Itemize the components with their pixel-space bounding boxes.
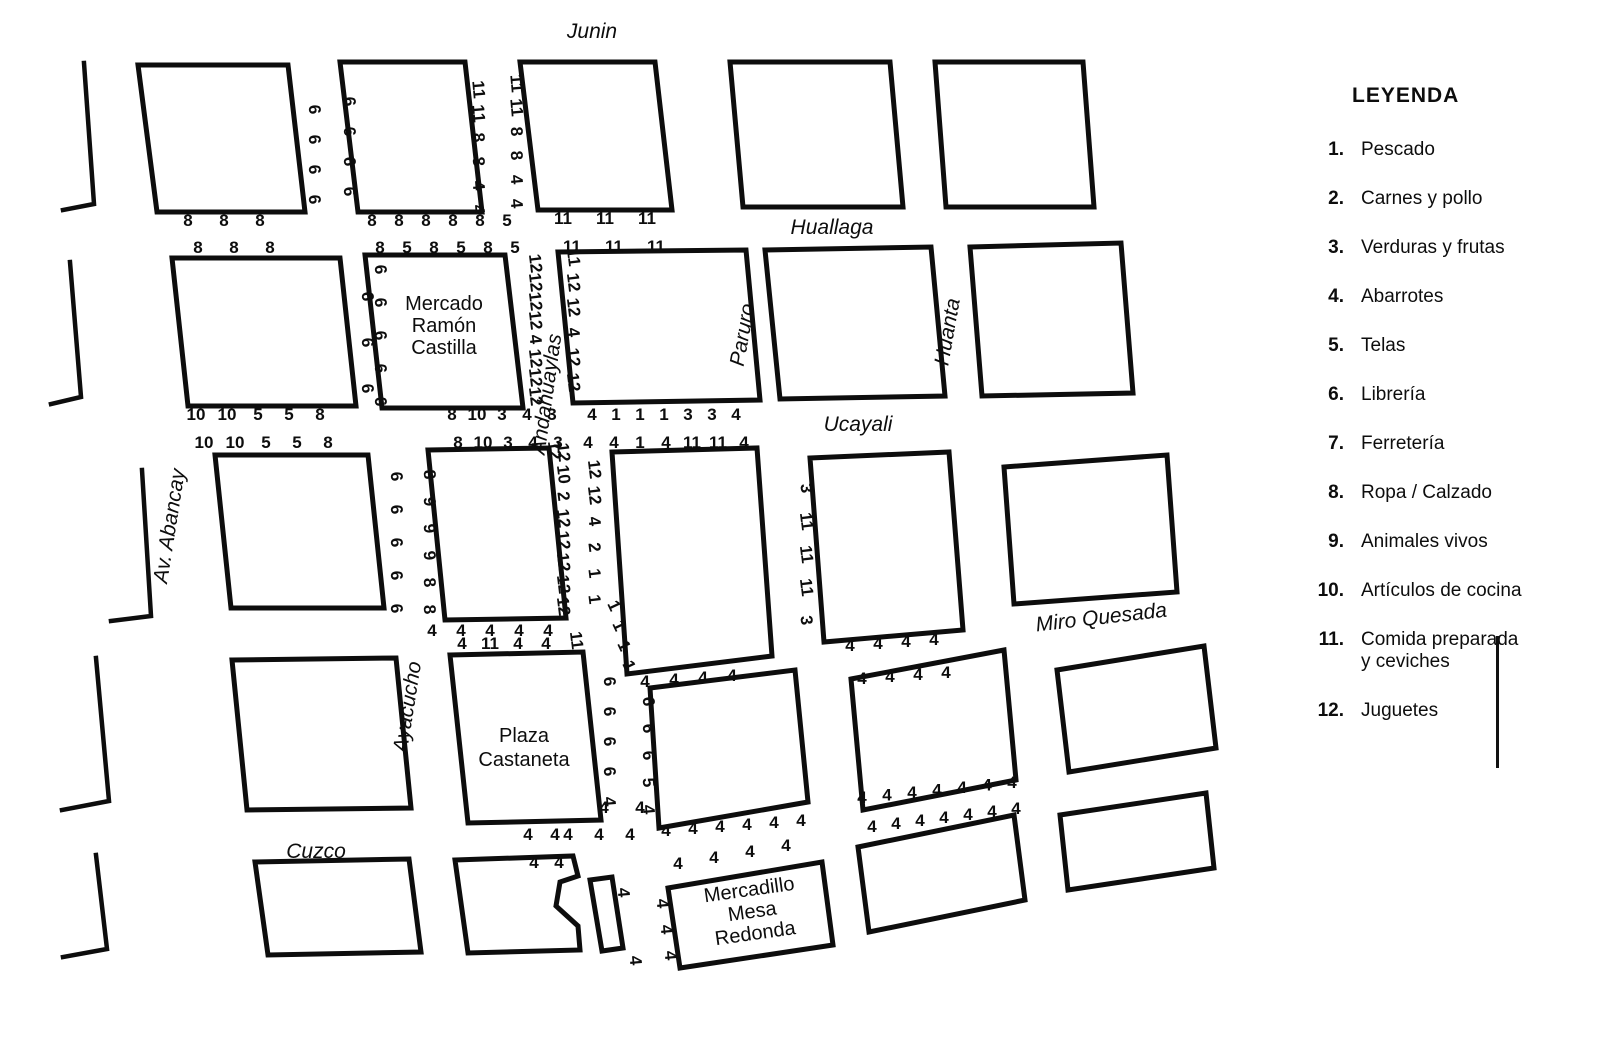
legend-item-number: 8. bbox=[1308, 482, 1344, 504]
stall-number: 8 bbox=[420, 604, 440, 615]
stall-number: 1 bbox=[611, 405, 620, 424]
stall-number: 6 bbox=[600, 736, 620, 747]
stall-number: 11 bbox=[554, 209, 572, 228]
stall-number: 6 bbox=[305, 134, 325, 145]
stall-number: 4 bbox=[587, 405, 597, 424]
legend-item-label: Pescado bbox=[1361, 139, 1435, 161]
stall-number: 8 bbox=[453, 433, 462, 452]
stall-number: 4 bbox=[957, 778, 967, 797]
stall-number: 8 bbox=[375, 238, 384, 257]
street-cuzco: Cuzco bbox=[286, 840, 346, 863]
stall-number: 10 bbox=[226, 433, 245, 452]
stall-number: 4 bbox=[796, 811, 806, 830]
street-miro-quesada: Miro Quesada bbox=[1034, 599, 1168, 637]
stall-number: 4 bbox=[739, 433, 749, 452]
legend-item-label: Animales vivos bbox=[1361, 531, 1488, 553]
stall-number: 12 bbox=[584, 459, 605, 480]
stall-number: 4 bbox=[987, 802, 997, 821]
street-av-abancay: Av. Abancay bbox=[149, 466, 190, 587]
legend-item: 5. Telas bbox=[1308, 335, 1601, 357]
stall-number: 12 bbox=[563, 297, 584, 318]
legend-item-label: Ferretería bbox=[1361, 433, 1444, 455]
street-huallaga: Huallaga bbox=[791, 216, 874, 239]
street-junin: Junin bbox=[566, 20, 617, 43]
block-r4c5 bbox=[1057, 646, 1216, 772]
stall-number: 4 bbox=[698, 668, 708, 687]
block-r5c5 bbox=[1060, 793, 1214, 890]
legend-item-number: 5. bbox=[1308, 335, 1344, 357]
stall-number: 6 bbox=[600, 706, 620, 717]
stall-number: 11 bbox=[605, 237, 623, 256]
stall-number: 1 bbox=[659, 405, 668, 424]
stall-number: 4 bbox=[507, 198, 527, 210]
stall-number: 4 bbox=[745, 842, 755, 861]
stall-number: 4 bbox=[669, 670, 679, 689]
stall-number: 4 bbox=[901, 632, 911, 651]
stall-number: 4 bbox=[882, 786, 892, 805]
stall-number: 8 bbox=[507, 150, 527, 161]
stall-number: 11 bbox=[566, 630, 587, 650]
block-r3c4 bbox=[810, 452, 963, 642]
legend-item-label: Verduras y frutas bbox=[1361, 237, 1505, 259]
stall-number: 5 bbox=[510, 238, 519, 257]
stall-number: 11 bbox=[796, 511, 817, 531]
stall-number: 6 bbox=[639, 696, 659, 707]
stall-number: 4 bbox=[709, 848, 719, 867]
street-ayacucho: Ayacucho bbox=[389, 659, 426, 756]
stall-number: 11 bbox=[563, 247, 584, 267]
stall-number: 10 bbox=[195, 433, 214, 452]
stall-number: 5 bbox=[639, 777, 659, 788]
stall-number: 4 bbox=[584, 515, 604, 527]
block-r1c4 bbox=[730, 62, 903, 207]
stall-number: 4 bbox=[640, 672, 650, 691]
stall-number: 6 bbox=[371, 363, 391, 374]
stall-number: 12 bbox=[525, 291, 546, 312]
stall-number: 4 bbox=[541, 634, 551, 653]
stall-number: 4 bbox=[932, 781, 942, 800]
stall-number: 5 bbox=[261, 433, 270, 452]
stall-number: 4 bbox=[963, 805, 973, 824]
stall-number: 9 bbox=[420, 523, 440, 534]
stall-number: 4 bbox=[639, 804, 659, 816]
stall-number: 6 bbox=[305, 194, 325, 205]
block-r3c1 bbox=[215, 455, 384, 608]
stall-number: 4 bbox=[513, 634, 523, 653]
block-r4c1 bbox=[232, 658, 411, 810]
stall-number: 4 bbox=[781, 836, 791, 855]
stall-number: 8 bbox=[323, 433, 332, 452]
stall-number: 11 bbox=[796, 544, 817, 564]
stall-number: 4 bbox=[915, 811, 925, 830]
stall-number: 8 bbox=[229, 238, 238, 257]
stall-number: 12 bbox=[525, 310, 546, 331]
stall-number: 6 bbox=[387, 504, 407, 515]
stall-number: 4 bbox=[688, 819, 698, 838]
stall-number: 12 bbox=[553, 552, 574, 573]
stall-number: 12 bbox=[525, 253, 546, 274]
stall-number: 4 bbox=[941, 663, 951, 682]
stall-number: 2 bbox=[553, 490, 573, 502]
stall-number: 6 bbox=[387, 570, 407, 581]
legend-item-label: Telas bbox=[1361, 335, 1405, 357]
legend-item-number: 9. bbox=[1308, 531, 1344, 553]
stall-number: 8 bbox=[420, 469, 440, 480]
block-r1c1 bbox=[138, 65, 305, 212]
stall-number: 6 bbox=[340, 126, 360, 137]
stall-number: 5 bbox=[502, 211, 511, 230]
stall-number: 2 bbox=[584, 541, 604, 553]
block-r5c4 bbox=[858, 815, 1025, 932]
stall-number: 6 bbox=[600, 676, 620, 687]
stall-number: 6 bbox=[371, 396, 391, 407]
stall-number: 4 bbox=[715, 817, 725, 836]
stall-number: 4 bbox=[769, 813, 779, 832]
stall-number: 4 bbox=[857, 669, 867, 688]
legend-item-number: 6. bbox=[1308, 384, 1344, 406]
edge-r2-left bbox=[51, 262, 81, 404]
stall-number: 6 bbox=[305, 104, 325, 115]
stall-number: 8 bbox=[447, 405, 456, 424]
stall-number: 4 bbox=[529, 853, 539, 872]
stall-number: 8 bbox=[394, 211, 403, 230]
stall-number: 12 bbox=[553, 596, 574, 617]
stall-number: 12 bbox=[584, 485, 605, 506]
stall-number: 8 bbox=[265, 238, 274, 257]
stall-number: 8 bbox=[429, 238, 438, 257]
stall-number: 8 bbox=[421, 211, 430, 230]
block-r2c5 bbox=[970, 243, 1133, 396]
stall-number: 4 bbox=[673, 854, 683, 873]
edge-r5-left bbox=[63, 855, 107, 957]
block-r1c2 bbox=[340, 62, 482, 212]
label-mercadillo-mesa-redonda: MercadilloMesaRedonda bbox=[702, 873, 801, 951]
legend-item: 10. Artículos de cocina bbox=[1308, 580, 1601, 602]
stall-number: 4 bbox=[727, 666, 737, 685]
stall-number: 4 bbox=[939, 808, 949, 827]
label-plaza-castaneta: PlazaCastaneta bbox=[478, 725, 570, 771]
legend-item-label: Juguetes bbox=[1361, 700, 1438, 722]
stall-number: 6 bbox=[387, 603, 407, 614]
stall-number: 1 bbox=[584, 567, 604, 579]
stall-number: 11 bbox=[647, 237, 665, 256]
stall-number: 1 bbox=[635, 405, 644, 424]
stall-number: 4 bbox=[427, 621, 437, 640]
stall-number: 4 bbox=[907, 783, 917, 802]
stall-number: 12 bbox=[563, 347, 584, 368]
stall-number: 11 bbox=[683, 433, 701, 452]
stall-number: 4 bbox=[469, 204, 489, 216]
stall-number: 6 bbox=[387, 471, 407, 482]
legend-item-label: Artículos de cocina bbox=[1361, 580, 1522, 602]
stall-number: 10 bbox=[187, 405, 206, 424]
legend-item-label: Librería bbox=[1361, 384, 1425, 406]
block-r4c3 bbox=[650, 670, 808, 828]
stall-number: 5 bbox=[292, 433, 301, 452]
stall-number: 4 bbox=[845, 636, 855, 655]
stall-number: 12 bbox=[525, 272, 546, 293]
stall-number: 5 bbox=[402, 238, 411, 257]
stall-number: 4 bbox=[554, 853, 564, 872]
stall-number: 6 bbox=[358, 383, 378, 394]
stall-number: 6 bbox=[340, 186, 360, 197]
stall-number: 4 bbox=[614, 887, 634, 899]
legend-item: 7. Ferretería bbox=[1308, 433, 1601, 455]
stall-number: 3 bbox=[796, 614, 816, 626]
stall-number: 8 bbox=[219, 211, 228, 230]
stall-number: 4 bbox=[857, 788, 867, 807]
stall-number: 8 bbox=[255, 211, 264, 230]
stall-number: 4 bbox=[600, 796, 620, 808]
street-ucayali: Ucayali bbox=[824, 413, 894, 436]
stall-number: 11 bbox=[468, 104, 488, 124]
street-map: 8888888888858585851111111111111010558101… bbox=[0, 0, 1240, 1047]
stall-number: 11 bbox=[796, 577, 817, 597]
legend-item: 11. Comida preparada y ceviches bbox=[1308, 629, 1601, 673]
stall-number: 8 bbox=[483, 238, 492, 257]
legend-item-number: 2. bbox=[1308, 188, 1344, 210]
stall-number: 12 bbox=[563, 372, 584, 393]
label-mercado-ramon-castilla: MercadoRamónCastilla bbox=[405, 293, 483, 359]
stall-number: 4 bbox=[867, 817, 877, 836]
stall-number: 4 bbox=[885, 667, 895, 686]
edge-r3-left bbox=[111, 470, 151, 621]
stall-number: 6 bbox=[371, 297, 391, 308]
legend-item-label: Comida preparada y ceviches bbox=[1361, 629, 1518, 673]
legend: LEYENDA 1. Pescado 2. Carnes y pollo 3. … bbox=[1308, 84, 1601, 749]
stall-number: 6 bbox=[371, 264, 391, 275]
stall-number: 6 bbox=[387, 537, 407, 548]
stall-number: 10 bbox=[474, 433, 493, 452]
stall-number: 11 bbox=[468, 80, 488, 100]
block-r1c3 bbox=[520, 62, 672, 210]
legend-item-number: 3. bbox=[1308, 237, 1344, 259]
stall-number: 8 bbox=[183, 211, 192, 230]
stall-number: 12 bbox=[553, 508, 574, 529]
legend-item: 4. Abarrotes bbox=[1308, 286, 1601, 308]
stall-number: 8 bbox=[420, 577, 440, 588]
stall-number: 5 bbox=[456, 238, 465, 257]
stall-number: 3 bbox=[497, 405, 506, 424]
legend-item: 8. Ropa / Calzado bbox=[1308, 482, 1601, 504]
stall-number: 3 bbox=[683, 405, 692, 424]
stall-number: 4 bbox=[609, 433, 619, 452]
stall-number: 9 bbox=[420, 496, 440, 507]
stall-number: 6 bbox=[340, 96, 360, 107]
block-r3c3 bbox=[612, 448, 772, 674]
legend-item-number: 11. bbox=[1308, 629, 1344, 673]
stall-number: 4 bbox=[891, 814, 901, 833]
stall-number: 6 bbox=[371, 330, 391, 341]
stall-number: 10 bbox=[468, 405, 487, 424]
legend-item-number: 12. bbox=[1308, 700, 1344, 722]
stall-number: 8 bbox=[193, 238, 202, 257]
map-page: 8888888888858585851111111111111010558101… bbox=[0, 0, 1601, 1047]
stall-number: 8 bbox=[315, 405, 324, 424]
stall-number: 10 bbox=[553, 464, 574, 485]
stall-number: 4 bbox=[563, 326, 583, 338]
block-r2c3 bbox=[558, 250, 760, 403]
stall-number: 6 bbox=[600, 766, 620, 777]
stall-number: 6 bbox=[639, 750, 659, 761]
block-r2c1 bbox=[172, 258, 356, 406]
stall-number: 4 bbox=[661, 433, 671, 452]
block-r3c5 bbox=[1004, 455, 1177, 604]
stall-number: 6 bbox=[639, 723, 659, 734]
stall-number: 12 bbox=[553, 574, 574, 595]
stall-number: 3 bbox=[503, 433, 512, 452]
legend-item: 2. Carnes y pollo bbox=[1308, 188, 1601, 210]
stall-number: 10 bbox=[218, 405, 237, 424]
stall-number: 11 bbox=[596, 209, 614, 228]
stall-number: 4 bbox=[507, 174, 527, 186]
stall-number: 9 bbox=[420, 550, 440, 561]
stall-number: 8 bbox=[469, 132, 489, 143]
legend-title: LEYENDA bbox=[1352, 84, 1601, 108]
stall-number: 12 bbox=[553, 530, 574, 551]
block-r2c4 bbox=[765, 247, 945, 399]
stall-number: 4 bbox=[731, 405, 741, 424]
legend-item-label: Ropa / Calzado bbox=[1361, 482, 1492, 504]
legend-item: 12. Juguetes bbox=[1308, 700, 1601, 722]
stall-number: 11 bbox=[506, 98, 526, 118]
stall-number: 4 bbox=[929, 630, 939, 649]
stall-number: 5 bbox=[253, 405, 262, 424]
stall-number: 4 bbox=[523, 825, 533, 844]
stall-number: 1 bbox=[635, 433, 644, 452]
legend-item-number: 10. bbox=[1308, 580, 1344, 602]
stall-number: 3 bbox=[707, 405, 716, 424]
legend-item: 3. Verduras y frutas bbox=[1308, 237, 1601, 259]
stall-number: 4 bbox=[594, 825, 604, 844]
stall-number: 4 bbox=[469, 180, 489, 192]
stall-number: 1 bbox=[584, 593, 604, 605]
stall-number: 11 bbox=[638, 209, 656, 228]
stall-number: 11 bbox=[481, 634, 499, 653]
stall-number: 4 bbox=[982, 776, 992, 795]
legend-item-number: 7. bbox=[1308, 433, 1344, 455]
stall-number: 8 bbox=[448, 211, 457, 230]
stall-number: 8 bbox=[469, 156, 489, 167]
legend-item: 9. Animales vivos bbox=[1308, 531, 1601, 553]
stall-number: 4 bbox=[661, 821, 671, 840]
stall-number: 4 bbox=[550, 825, 560, 844]
stall-number: 4 bbox=[1007, 773, 1017, 792]
stall-number: 4 bbox=[742, 815, 752, 834]
legend-item-label: Carnes y pollo bbox=[1361, 188, 1482, 210]
stall-number: 4 bbox=[563, 825, 573, 844]
block-r3c2 bbox=[428, 448, 566, 620]
stall-number: 4 bbox=[913, 665, 923, 684]
page-edge-line bbox=[1496, 636, 1499, 768]
legend-item-number: 4. bbox=[1308, 286, 1344, 308]
stall-number: 8 bbox=[507, 126, 527, 137]
stall-number: 8 bbox=[367, 211, 376, 230]
stall-number: 4 bbox=[583, 433, 593, 452]
stall-number: 12 bbox=[563, 272, 584, 293]
stall-number: 4 bbox=[625, 825, 635, 844]
edge-r4-left bbox=[62, 658, 109, 810]
stall-number: 4 bbox=[626, 955, 646, 967]
legend-item-number: 1. bbox=[1308, 139, 1344, 161]
stall-number: 11 bbox=[709, 433, 727, 452]
legend-item: 1. Pescado bbox=[1308, 139, 1601, 161]
block-r5c1 bbox=[255, 859, 421, 955]
legend-item-label: Abarrotes bbox=[1361, 286, 1443, 308]
stall-number: 5 bbox=[284, 405, 293, 424]
stall-number: 6 bbox=[340, 156, 360, 167]
stall-number: 6 bbox=[305, 164, 325, 175]
block-r1c5 bbox=[935, 62, 1094, 207]
edge-r1-left bbox=[63, 63, 94, 210]
stall-number: 4 bbox=[1011, 799, 1021, 818]
stall-number: 4 bbox=[457, 634, 467, 653]
stall-number: 11 bbox=[506, 74, 526, 94]
stall-number: 4 bbox=[873, 634, 883, 653]
legend-item: 6. Librería bbox=[1308, 384, 1601, 406]
